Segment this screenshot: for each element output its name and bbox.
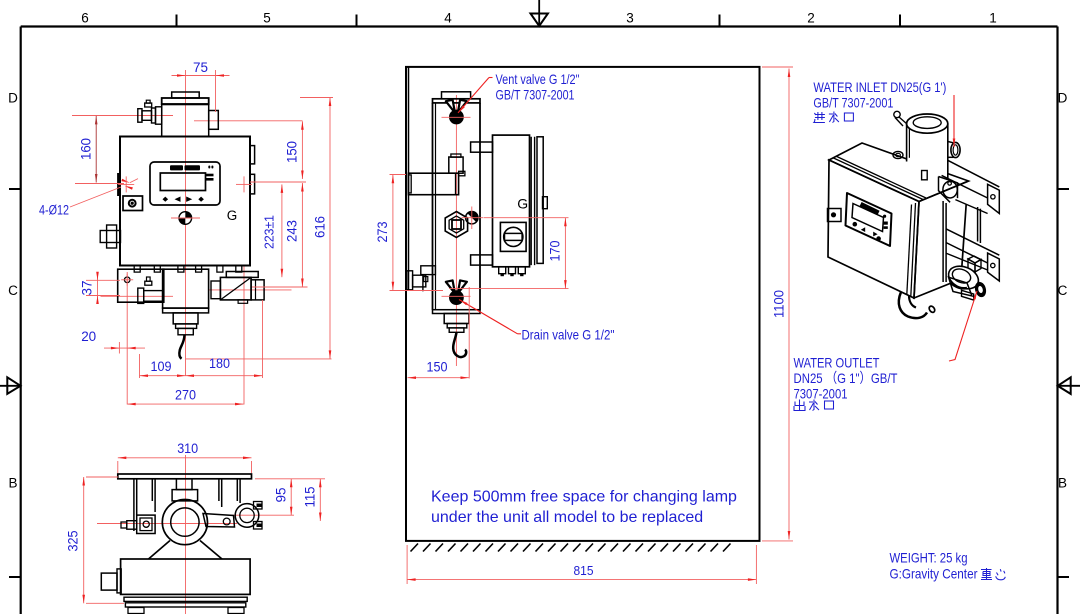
svg-text:C: C — [1058, 283, 1068, 298]
svg-text:20: 20 — [81, 329, 96, 344]
svg-text:37: 37 — [80, 281, 95, 296]
svg-text:under the unit all model to be: under the unit all model to be replaced — [431, 509, 703, 526]
svg-text:3: 3 — [626, 11, 634, 26]
svg-text:G: G — [517, 196, 528, 212]
svg-text:243: 243 — [285, 220, 300, 242]
svg-text:B: B — [8, 476, 17, 491]
svg-text:616: 616 — [313, 216, 328, 238]
svg-text:Keep 500mm free space for chan: Keep 500mm free space for changing lamp — [431, 489, 737, 506]
svg-text:D: D — [1058, 91, 1068, 106]
svg-text:C: C — [8, 283, 18, 298]
svg-text:DN25 （G 1"）GB/T: DN25 （G 1"）GB/T — [794, 370, 898, 386]
svg-text:115: 115 — [303, 487, 318, 508]
svg-text:5: 5 — [263, 11, 271, 26]
svg-text:150: 150 — [427, 360, 448, 375]
svg-text:310: 310 — [177, 441, 198, 456]
svg-text:815: 815 — [574, 563, 594, 578]
svg-text:Vent valve G 1/2": Vent valve G 1/2" — [496, 71, 580, 87]
svg-text:GB/T 7307-2001: GB/T 7307-2001 — [813, 95, 893, 111]
svg-text:150: 150 — [285, 141, 300, 163]
svg-text:170: 170 — [548, 241, 563, 262]
svg-text:WATER OUTLET: WATER OUTLET — [794, 355, 880, 371]
svg-text:180: 180 — [209, 356, 230, 371]
svg-text:GB/T 7307-2001: GB/T 7307-2001 — [496, 87, 575, 103]
svg-text:273: 273 — [375, 222, 390, 243]
svg-text:G:Gravity Center: G:Gravity Center — [890, 566, 978, 582]
svg-text:160: 160 — [79, 138, 94, 160]
svg-text:109: 109 — [151, 359, 172, 374]
svg-text:Drain valve G 1/2": Drain valve G 1/2" — [522, 327, 615, 343]
svg-text:75: 75 — [193, 60, 208, 75]
svg-text:WATER INLET DN25(G 1'): WATER INLET DN25(G 1') — [813, 79, 946, 95]
svg-text:G: G — [227, 208, 238, 223]
svg-text:1100: 1100 — [772, 290, 787, 318]
svg-text:7307-2001: 7307-2001 — [794, 386, 848, 402]
svg-text:1: 1 — [989, 11, 997, 26]
svg-text:270: 270 — [175, 388, 196, 403]
svg-text:325: 325 — [66, 531, 81, 552]
svg-text:4: 4 — [444, 11, 452, 26]
svg-text:B: B — [1058, 476, 1067, 491]
svg-text:223±1: 223±1 — [263, 215, 277, 249]
svg-text:95: 95 — [274, 488, 289, 503]
svg-text:4-Ø12: 4-Ø12 — [39, 203, 69, 218]
svg-text:6: 6 — [81, 11, 89, 26]
svg-text:D: D — [8, 91, 18, 106]
svg-text:WEIGHT: 25 kg: WEIGHT: 25 kg — [890, 550, 968, 566]
svg-text:2: 2 — [807, 11, 815, 26]
